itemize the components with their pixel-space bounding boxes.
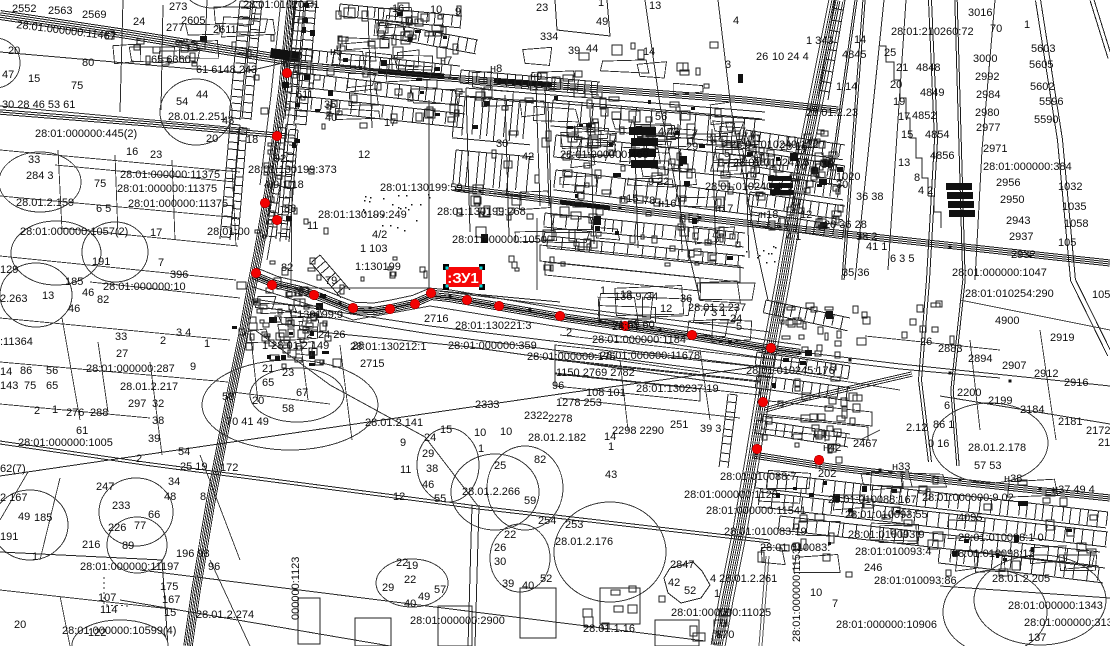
svg-text:28.01.2.251: 28.01.2.251 <box>168 111 226 123</box>
svg-text:2919: 2919 <box>1050 332 1074 344</box>
svg-text:185: 185 <box>34 512 52 524</box>
svg-text:246: 246 <box>864 562 882 574</box>
svg-text:2552: 2552 <box>12 3 36 15</box>
svg-text:1: 1 <box>1024 19 1030 31</box>
svg-text:2980: 2980 <box>975 107 999 119</box>
svg-text:28:01:130199:373: 28:01:130199:373 <box>248 164 337 176</box>
svg-text:14: 14 <box>643 46 655 58</box>
svg-text:2467: 2467 <box>853 438 877 450</box>
svg-text:26: 26 <box>494 542 506 554</box>
svg-text:12: 12 <box>358 149 370 161</box>
svg-text:1: 1 <box>204 338 210 350</box>
svg-text:2912: 2912 <box>1034 368 1058 380</box>
svg-text:49: 49 <box>418 591 430 603</box>
svg-text:89: 89 <box>122 540 134 552</box>
svg-text:75: 75 <box>94 178 106 190</box>
svg-text:4856: 4856 <box>930 150 954 162</box>
svg-text:61 6148 243: 61 6148 243 <box>196 64 257 76</box>
svg-text:29: 29 <box>422 448 434 460</box>
svg-text:2716: 2716 <box>424 313 448 325</box>
svg-text:2: 2 <box>136 453 142 465</box>
svg-text:334: 334 <box>540 31 558 43</box>
svg-text:8: 8 <box>200 491 206 503</box>
svg-text:28:01:000000:359: 28:01:000000:359 <box>448 340 537 352</box>
svg-text:2184: 2184 <box>1020 404 1044 416</box>
svg-text:28.01.2.274: 28.01.2.274 <box>196 609 254 621</box>
svg-text:20: 20 <box>14 619 26 631</box>
svg-text:9: 9 <box>455 6 461 18</box>
svg-text:20: 20 <box>8 45 20 57</box>
svg-text:23: 23 <box>150 149 162 161</box>
svg-text:67: 67 <box>296 387 308 399</box>
svg-text:28:01:010088:167: 28:01:010088:167 <box>828 494 917 506</box>
svg-text:42: 42 <box>522 151 534 163</box>
svg-text:57 53: 57 53 <box>974 460 1002 472</box>
svg-text:2 167: 2 167 <box>0 492 28 504</box>
svg-text:30: 30 <box>836 179 848 191</box>
svg-text:32: 32 <box>152 398 164 410</box>
svg-text:54: 54 <box>178 446 190 458</box>
svg-text:75: 75 <box>71 80 83 92</box>
svg-text:30 28 46 53 61: 30 28 46 53 61 <box>2 99 75 111</box>
svg-text:28:01:010093:9: 28:01:010093:9 <box>848 529 924 541</box>
svg-text:28: 28 <box>352 340 364 352</box>
svg-text:2563: 2563 <box>48 5 72 17</box>
svg-text:4 9 1 18: 4 9 1 18 <box>264 179 304 191</box>
svg-text:57: 57 <box>434 584 446 596</box>
svg-text:297: 297 <box>128 398 146 410</box>
svg-text:44: 44 <box>196 89 208 101</box>
svg-text:4 43: 4 43 <box>658 126 679 138</box>
svg-text:10: 10 <box>474 427 486 439</box>
svg-text:65: 65 <box>46 380 58 392</box>
svg-text:48: 48 <box>164 491 176 503</box>
svg-text:23: 23 <box>282 367 294 379</box>
svg-text:247: 247 <box>96 481 114 493</box>
svg-text:28.01.2.23: 28.01.2.23 <box>806 107 858 119</box>
svg-text:30: 30 <box>496 138 508 150</box>
svg-text:2956: 2956 <box>996 177 1020 189</box>
svg-text:28:01:000000:384: 28:01:000000:384 <box>983 161 1072 173</box>
svg-text:28:01:000000:1184: 28:01:000000:1184 <box>592 334 686 346</box>
svg-text:96: 96 <box>208 561 220 573</box>
svg-text:10: 10 <box>810 587 822 599</box>
svg-text:28:01:000000:11375: 28:01:000000:11375 <box>120 169 220 181</box>
svg-text:28:01:010093:86: 28:01:010093:86 <box>874 575 957 587</box>
svg-text:28:01:010240:4: 28:01:010240:4 <box>705 181 781 193</box>
svg-text:2916: 2916 <box>1064 377 1088 389</box>
svg-text:49: 49 <box>18 511 30 523</box>
svg-text:2950: 2950 <box>1000 194 1024 206</box>
svg-text:2.263: 2.263 <box>0 293 28 305</box>
svg-text:2: 2 <box>566 327 572 339</box>
svg-text:28:01:000000:11541: 28:01:000000:11541 <box>706 505 806 517</box>
svg-text:36 38: 36 38 <box>856 191 884 203</box>
svg-text:1150 2769 2782: 1150 2769 2782 <box>556 367 635 379</box>
svg-text:23: 23 <box>536 2 548 14</box>
svg-text:2172: 2172 <box>1086 425 1110 437</box>
svg-text:82: 82 <box>534 454 546 466</box>
svg-text:н9: н9 <box>530 71 542 83</box>
svg-text:175: 175 <box>160 581 178 593</box>
svg-text:2977: 2977 <box>976 122 1000 134</box>
svg-text:29: 29 <box>686 141 698 153</box>
svg-text:20 36 28: 20 36 28 <box>824 219 867 231</box>
svg-text:2.12: 2.12 <box>906 422 927 434</box>
svg-text:34: 34 <box>646 291 658 303</box>
svg-text:56: 56 <box>46 365 58 377</box>
svg-text:136 97: 136 97 <box>614 291 648 303</box>
svg-text:1 38: 1 38 <box>812 159 833 171</box>
svg-text:н16: н16 <box>658 198 676 210</box>
svg-text:66: 66 <box>148 509 160 521</box>
svg-text:14: 14 <box>854 34 866 46</box>
svg-text:3 4: 3 4 <box>176 327 191 339</box>
svg-text:2847: 2847 <box>670 559 694 571</box>
svg-text:9: 9 <box>190 361 196 373</box>
svg-text:4 1: 4 1 <box>786 231 801 243</box>
svg-text:2971: 2971 <box>983 143 1007 155</box>
svg-text:1: 1 <box>598 0 604 9</box>
svg-text:000000:1123: 000000:1123 <box>290 557 302 620</box>
svg-text:88: 88 <box>284 203 296 215</box>
svg-text:28:01:130199:268: 28:01:130199:268 <box>437 206 526 218</box>
svg-text:1 28.01.2.149: 1 28.01.2.149 <box>262 340 329 352</box>
svg-text:20: 20 <box>206 133 218 145</box>
svg-text:2298 2290: 2298 2290 <box>612 425 664 437</box>
svg-text:28.01.2.182: 28.01.2.182 <box>528 432 586 444</box>
svg-text:61: 61 <box>76 425 88 437</box>
svg-text:28:01:000000:287: 28:01:000000:287 <box>86 363 175 375</box>
svg-text:28:01:130199:59: 28:01:130199:59 <box>380 182 463 194</box>
svg-text:10: 10 <box>500 426 512 438</box>
svg-text:28.01.2.217: 28.01.2.217 <box>120 381 178 393</box>
svg-text:1: 1 <box>478 443 484 455</box>
svg-text:65: 65 <box>262 377 274 389</box>
svg-text:288: 288 <box>90 407 108 419</box>
svg-text:28:01:210260:72: 28:01:210260:72 <box>891 26 974 38</box>
svg-text:н33: н33 <box>892 461 910 473</box>
svg-text:58: 58 <box>282 403 294 415</box>
svg-text:38: 38 <box>152 415 164 427</box>
svg-text:1 343: 1 343 <box>806 35 834 47</box>
svg-text:39: 39 <box>502 578 514 590</box>
svg-text:28.01.2.141: 28.01.2.141 <box>365 417 423 429</box>
svg-text:28:01:000000:11375: 28:01:000000:11375 <box>128 198 228 210</box>
svg-text:26: 26 <box>756 51 768 63</box>
svg-text:8: 8 <box>914 172 920 184</box>
svg-text:129: 129 <box>0 264 18 276</box>
svg-text:12: 12 <box>660 303 672 315</box>
svg-text:47: 47 <box>2 69 14 81</box>
svg-text:46: 46 <box>82 287 94 299</box>
svg-text:12: 12 <box>800 209 812 221</box>
svg-text:167: 167 <box>162 594 180 606</box>
svg-text:1278 253: 1278 253 <box>556 397 602 409</box>
svg-text:28:01:130221:3: 28:01:130221:3 <box>455 320 531 332</box>
svg-text:13: 13 <box>649 0 661 12</box>
svg-text:49: 49 <box>596 16 608 28</box>
svg-text:30: 30 <box>494 556 506 568</box>
svg-text:0 16: 0 16 <box>928 438 949 450</box>
svg-text:2: 2 <box>306 329 312 341</box>
svg-text:28:01:010093:55: 28:01:010093:55 <box>845 509 928 521</box>
svg-text:20: 20 <box>252 395 264 407</box>
svg-text:22: 22 <box>396 557 408 569</box>
svg-text:77: 77 <box>134 520 146 532</box>
svg-text:15: 15 <box>901 129 913 141</box>
svg-text:40: 40 <box>325 112 337 124</box>
svg-text:28:01:010201:1: 28:01:010201:1 <box>243 0 319 11</box>
svg-text:44: 44 <box>586 43 598 55</box>
svg-text:4: 4 <box>733 15 739 27</box>
svg-text:14: 14 <box>0 366 12 378</box>
svg-text:39: 39 <box>148 433 160 445</box>
svg-text:28:01:010098:1 0: 28:01:010098:1 0 <box>958 532 1044 544</box>
svg-text:28:01:010088:7: 28:01:010088:7 <box>720 471 796 483</box>
svg-text:н17: н17 <box>715 203 733 215</box>
svg-text:17: 17 <box>150 227 162 239</box>
svg-text:2932: 2932 <box>1011 249 1035 261</box>
svg-text:25: 25 <box>884 47 896 59</box>
svg-text:40: 40 <box>522 580 534 592</box>
svg-text:191: 191 <box>0 531 18 543</box>
svg-text:251: 251 <box>670 419 688 431</box>
svg-text:5605: 5605 <box>1029 59 1053 71</box>
svg-text:38 2: 38 2 <box>856 231 877 243</box>
svg-text:2199: 2199 <box>988 395 1012 407</box>
svg-text:28.01.2.159: 28.01.2.159 <box>16 197 74 209</box>
svg-text:3: 3 <box>725 59 731 71</box>
svg-text:26: 26 <box>920 336 932 348</box>
svg-text:1: 1 <box>32 551 38 563</box>
svg-text:2894: 2894 <box>968 353 992 365</box>
svg-text:185: 185 <box>65 276 83 288</box>
svg-text:9 22: 9 22 <box>648 176 669 188</box>
svg-text:28:01:000000:10906: 28:01:000000:10906 <box>836 619 937 631</box>
svg-text:1 59 60: 1 59 60 <box>618 319 655 331</box>
svg-text:28:01:000000:1005: 28:01:000000:1005 <box>18 437 113 449</box>
svg-text:4849: 4849 <box>920 87 944 99</box>
svg-text:254: 254 <box>538 515 556 527</box>
svg-text:11: 11 <box>307 220 318 232</box>
svg-text:10 24 4: 10 24 4 <box>772 51 809 63</box>
svg-text:54: 54 <box>176 96 188 108</box>
svg-text:21: 21 <box>896 62 908 74</box>
svg-text:н18: н18 <box>760 209 778 221</box>
svg-text:28.01.1.16: 28.01.1.16 <box>583 623 635 635</box>
svg-text:46: 46 <box>68 303 80 315</box>
svg-text:33: 33 <box>115 331 127 343</box>
svg-text::11364: :11364 <box>0 336 33 348</box>
svg-text:34: 34 <box>168 476 180 488</box>
svg-text:70: 70 <box>990 23 1002 35</box>
svg-text:10: 10 <box>430 4 442 16</box>
svg-text:611: 611 <box>296 89 314 101</box>
svg-text:24 26: 24 26 <box>318 329 346 341</box>
svg-text:28:01:010093:4: 28:01:010093:4 <box>855 546 931 558</box>
svg-text:137: 137 <box>1028 632 1046 644</box>
svg-text:4900: 4900 <box>995 315 1019 327</box>
svg-text:16: 16 <box>126 146 138 158</box>
svg-text:1035: 1035 <box>1062 201 1086 213</box>
svg-text:н38: н38 <box>1004 473 1022 485</box>
svg-text:28:01:130199:249: 28:01:130199:249 <box>318 209 407 221</box>
svg-text:86 1: 86 1 <box>933 419 954 431</box>
svg-text:24: 24 <box>133 16 145 28</box>
svg-text:3016: 3016 <box>968 7 992 19</box>
svg-text:35: 35 <box>324 99 336 111</box>
svg-text:105: 105 <box>1092 289 1110 301</box>
svg-text:4845: 4845 <box>842 49 866 61</box>
svg-text:78: 78 <box>643 195 655 207</box>
svg-text:28:01:000000:10: 28:01:000000:10 <box>103 281 186 293</box>
svg-text:1:130199:9: 1:130199:9 <box>288 309 343 321</box>
svg-text:2715: 2715 <box>360 358 384 370</box>
svg-text:6 3 5: 6 3 5 <box>890 253 914 265</box>
svg-text:7: 7 <box>158 257 164 269</box>
svg-text:2984: 2984 <box>976 89 1000 101</box>
svg-text:2: 2 <box>160 335 166 347</box>
svg-text:3000: 3000 <box>973 53 997 65</box>
svg-text:24: 24 <box>730 313 742 325</box>
svg-text:28:01:000000:313: 28:01:000000:313 <box>1024 617 1110 629</box>
svg-text:17: 17 <box>384 117 396 129</box>
svg-text:22: 22 <box>404 574 416 586</box>
svg-text:15: 15 <box>28 73 40 85</box>
svg-text:233: 233 <box>112 500 130 512</box>
svg-text:н42: н42 <box>823 442 841 454</box>
svg-text:4/2: 4/2 <box>372 229 387 241</box>
svg-text:2883: 2883 <box>938 343 962 355</box>
svg-text:4854: 4854 <box>925 129 949 141</box>
svg-text:4 2: 4 2 <box>918 185 933 197</box>
svg-text:82: 82 <box>97 294 109 306</box>
svg-text:28:01:010083:19: 28:01:010083:19 <box>724 526 807 538</box>
svg-text:5590: 5590 <box>1034 114 1058 126</box>
svg-text:28:01:010241:5: 28:01:010241:5 <box>733 157 809 169</box>
svg-text:5602: 5602 <box>1030 81 1054 93</box>
svg-text:1: 1 <box>608 441 614 453</box>
svg-text:39: 39 <box>568 45 580 57</box>
svg-text:13: 13 <box>898 157 910 169</box>
svg-text:39 3: 39 3 <box>700 423 721 435</box>
svg-text:52: 52 <box>684 585 696 597</box>
svg-text:1058: 1058 <box>1064 218 1088 230</box>
svg-text:22: 22 <box>504 529 516 541</box>
svg-text:1 103: 1 103 <box>360 243 388 255</box>
svg-text:58: 58 <box>222 391 234 403</box>
svg-text:5603: 5603 <box>1031 43 1055 55</box>
svg-text:4 28.01.2.261: 4 28.01.2.261 <box>710 573 777 585</box>
svg-text:25 19: 25 19 <box>180 461 208 473</box>
svg-text:1: 1 <box>52 404 58 416</box>
svg-text:35 36: 35 36 <box>842 267 870 279</box>
svg-text:59: 59 <box>524 495 536 507</box>
svg-text:28.01.2.266: 28.01.2.266 <box>462 486 520 498</box>
svg-text:н5: н5 <box>330 46 342 58</box>
svg-text:н8: н8 <box>490 63 502 75</box>
svg-text:28:01:000000:2900: 28:01:000000:2900 <box>410 615 505 627</box>
svg-text:172: 172 <box>220 462 238 474</box>
svg-text:12: 12 <box>393 491 405 503</box>
svg-text:28:01:000000:11535: 28:01:000000:11535 <box>791 542 803 642</box>
svg-text:226: 226 <box>108 522 126 534</box>
svg-text:253: 253 <box>565 519 583 531</box>
svg-text:28:01:010245:176: 28:01:010245:176 <box>746 365 835 377</box>
svg-text:21: 21 <box>262 363 274 375</box>
svg-text:28:01:00: 28:01:00 <box>207 226 250 238</box>
svg-text:38: 38 <box>426 463 438 475</box>
svg-text:107: 107 <box>98 592 116 604</box>
svg-text:28:01:000000:11678: 28:01:000000:11678 <box>600 350 700 362</box>
svg-text:56: 56 <box>655 111 667 123</box>
svg-text:19: 19 <box>893 96 905 108</box>
svg-text:396: 396 <box>170 269 188 281</box>
svg-text:4848: 4848 <box>916 62 940 74</box>
svg-text:114: 114 <box>100 604 118 616</box>
svg-text:276: 276 <box>66 407 84 419</box>
svg-text:28:01:000000:1057(2): 28:01:000000:1057(2) <box>20 226 128 238</box>
svg-text:17: 17 <box>898 111 910 123</box>
svg-text:191: 191 <box>92 256 110 268</box>
svg-text:2569: 2569 <box>82 9 106 21</box>
svg-text:н37 49 4: н37 49 4 <box>1052 484 1095 496</box>
svg-text:29: 29 <box>382 582 394 594</box>
svg-text:28:01:000000:1050: 28:01:000000:1050 <box>452 234 547 246</box>
svg-text:5596: 5596 <box>1039 96 1063 108</box>
svg-text:6 5: 6 5 <box>96 203 111 215</box>
svg-text:284 3: 284 3 <box>26 170 54 182</box>
svg-text:42: 42 <box>668 577 680 589</box>
svg-text:46: 46 <box>422 479 434 491</box>
svg-text:28:01:010098:12: 28:01:010098:12 <box>952 548 1035 560</box>
svg-text:15: 15 <box>164 607 176 619</box>
svg-text:196 98: 196 98 <box>176 548 210 560</box>
svg-text:1032: 1032 <box>1058 181 1082 193</box>
svg-text:2611: 2611 <box>213 24 237 36</box>
svg-text:55: 55 <box>434 493 446 505</box>
svg-text:28:01:000000:1129: 28:01:000000:1129 <box>684 489 778 501</box>
svg-text:143: 143 <box>0 380 18 392</box>
svg-text:2992: 2992 <box>975 71 999 83</box>
svg-text:43: 43 <box>605 469 617 481</box>
svg-text:1: 1 <box>714 588 720 600</box>
svg-text:28:01:000000:1047: 28:01:000000:1047 <box>952 267 1047 279</box>
svg-text:96: 96 <box>552 380 564 392</box>
svg-text:70 41 49: 70 41 49 <box>226 416 269 428</box>
svg-text:870: 870 <box>716 629 734 641</box>
svg-text:216: 216 <box>82 539 100 551</box>
svg-text:2937: 2937 <box>1009 231 1033 243</box>
svg-text:52: 52 <box>540 573 552 585</box>
svg-text:13: 13 <box>42 290 54 302</box>
svg-text:28.01.2.176: 28.01.2.176 <box>555 536 613 548</box>
svg-text:2333: 2333 <box>475 399 499 411</box>
svg-text:25: 25 <box>494 460 506 472</box>
svg-text:7: 7 <box>832 598 838 610</box>
svg-text:28:01:130237:19: 28:01:130237:19 <box>636 383 719 395</box>
svg-text:33: 33 <box>28 154 40 166</box>
svg-text:28:01:000000:11197: 28:01:000000:11197 <box>80 561 179 573</box>
svg-text:2907: 2907 <box>1002 360 1026 372</box>
svg-text:82: 82 <box>281 262 293 274</box>
svg-text:65 6360: 65 6360 <box>151 54 191 66</box>
svg-text:40: 40 <box>404 598 416 610</box>
svg-text:28:01:000000:9 02: 28:01:000000:9 02 <box>922 492 1014 504</box>
svg-text:2605: 2605 <box>181 15 205 27</box>
svg-text:202: 202 <box>818 468 836 480</box>
